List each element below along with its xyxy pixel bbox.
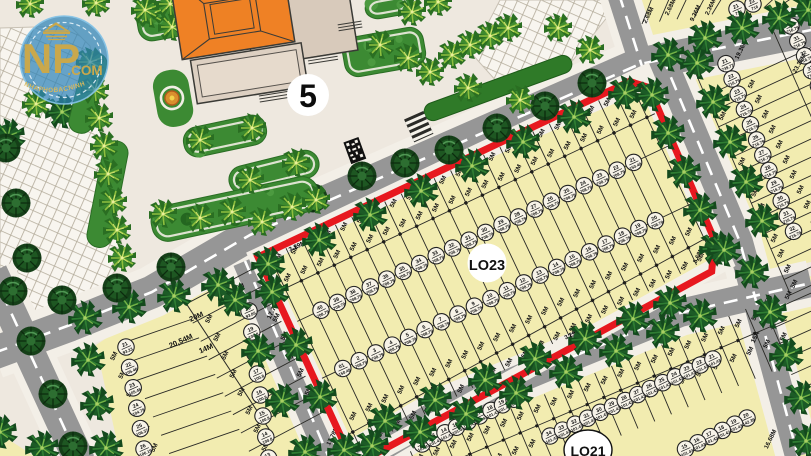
svg-text:LO23: LO23 (469, 258, 505, 274)
svg-text:5: 5 (299, 78, 317, 114)
svg-text:LO21: LO21 (570, 443, 605, 456)
svg-text:.COM: .COM (67, 63, 102, 78)
